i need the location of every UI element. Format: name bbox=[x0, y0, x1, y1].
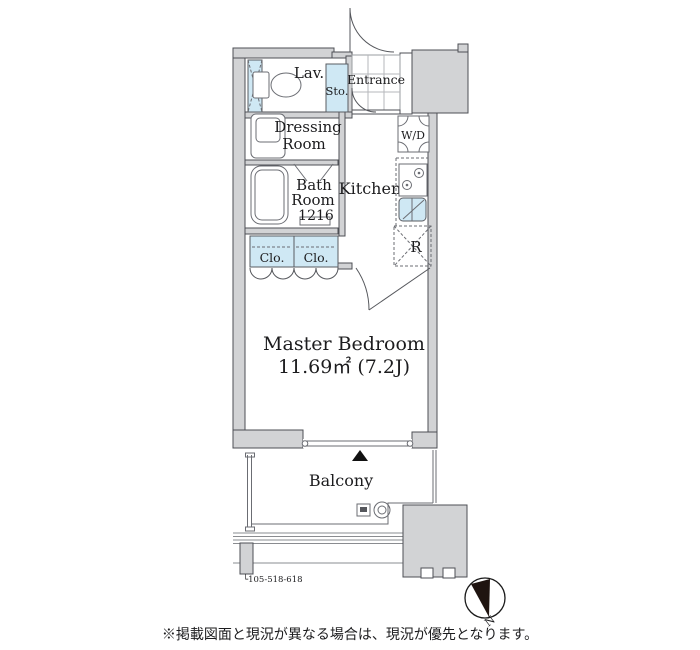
kitchen-label: Kitchen bbox=[339, 179, 402, 198]
compass-icon: N bbox=[465, 578, 505, 629]
disclaimer-text: ※掲載図面と現況が異なる場合は、現況が優先となります。 bbox=[162, 627, 538, 643]
dressing-label-2: Room bbox=[282, 135, 326, 153]
dressing-label-1: Dressing bbox=[274, 118, 342, 136]
orientation-marker-icon bbox=[352, 450, 368, 461]
bath-room: Bath Room 1216 bbox=[251, 164, 335, 225]
dressing-room: Dressing Room bbox=[251, 114, 342, 158]
bedroom-name-label: Master Bedroom bbox=[263, 333, 425, 355]
window-icon bbox=[302, 439, 413, 448]
unit-numbers-label: └105-518-618 bbox=[243, 574, 303, 585]
bedroom-door-icon bbox=[356, 268, 430, 310]
balcony-block bbox=[403, 505, 467, 578]
lav-label: Lav. bbox=[294, 64, 324, 82]
floor-plan-page: Entrance Lav. Sto. Dressing Room Bat bbox=[0, 0, 700, 650]
balcony-area: Balcony └105-518-618 bbox=[233, 450, 467, 585]
bathtub-icon bbox=[251, 166, 288, 224]
sink-icon bbox=[399, 198, 426, 221]
bath-label-3: 1216 bbox=[298, 208, 334, 224]
faucet-icon bbox=[357, 504, 370, 516]
balcony-label: Balcony bbox=[309, 471, 373, 490]
closet-left-label: Clo. bbox=[260, 250, 285, 265]
closets: Clo. Clo. bbox=[250, 236, 338, 279]
floor-plan-svg: Entrance Lav. Sto. Dressing Room Bat bbox=[0, 0, 700, 650]
refrigerator-space: R bbox=[394, 226, 431, 266]
closet-doors-icon bbox=[250, 268, 338, 279]
refrigerator-label: R bbox=[410, 238, 422, 256]
entry-door-icon bbox=[350, 8, 394, 52]
bath-label-2: Room bbox=[291, 191, 335, 209]
entrance-label: Entrance bbox=[347, 72, 405, 87]
wd-label: W/D bbox=[401, 129, 425, 142]
stove-icon bbox=[399, 164, 427, 196]
sto-label: Sto. bbox=[326, 84, 349, 98]
bedroom-size-label: 11.69㎡ (7.2J) bbox=[278, 355, 410, 378]
kitchen-area: Kitchen W/D R bbox=[339, 116, 431, 266]
lavatory-area: Lav. Sto. bbox=[248, 60, 348, 112]
closet-right-label: Clo. bbox=[304, 250, 329, 265]
washer-dryer-icon: W/D bbox=[398, 116, 429, 152]
balcony-post bbox=[240, 543, 253, 574]
entrance-area: Entrance bbox=[347, 8, 405, 114]
